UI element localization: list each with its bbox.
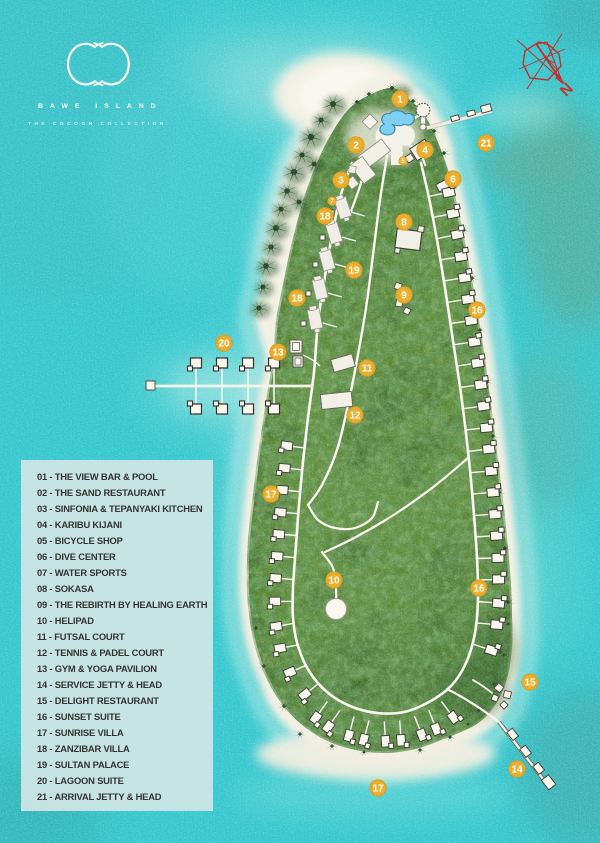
svg-text:02 - THE SAND RESTAURANT: 02 - THE SAND RESTAURANT: [37, 487, 166, 498]
svg-text:20 - LAGOON SUITE: 20 - LAGOON SUITE: [37, 775, 124, 786]
svg-text:19 - SULTAN PALACE: 19 - SULTAN PALACE: [37, 759, 129, 770]
svg-text:10 - HELIPAD: 10 - HELIPAD: [37, 615, 94, 626]
svg-text:06 - DIVE CENTER: 06 - DIVE CENTER: [37, 551, 116, 562]
svg-text:01 - THE VIEW BAR & POOL: 01 - THE VIEW BAR & POOL: [37, 471, 158, 482]
svg-text:14 - SERVICE JETTY & HEAD: 14 - SERVICE JETTY & HEAD: [37, 679, 162, 690]
svg-text:11 - FUTSAL COURT: 11 - FUTSAL COURT: [37, 631, 125, 642]
svg-text:21 - ARRIVAL JETTY & HEAD: 21 - ARRIVAL JETTY & HEAD: [37, 791, 162, 802]
svg-text:03 - SINFONIA & TEPANYAKI KITC: 03 - SINFONIA & TEPANYAKI KITCHEN: [37, 503, 203, 514]
svg-text:09 - THE REBIRTH BY HEALING EA: 09 - THE REBIRTH BY HEALING EARTH: [37, 599, 208, 610]
svg-text:13 - GYM & YOGA PAVILION: 13 - GYM & YOGA PAVILION: [37, 663, 157, 674]
svg-text:08 - SOKASA: 08 - SOKASA: [37, 583, 94, 594]
svg-text:17 - SUNRISE VILLA: 17 - SUNRISE VILLA: [37, 727, 124, 738]
svg-text:16 - SUNSET SUITE: 16 - SUNSET SUITE: [37, 711, 121, 722]
svg-text:BAWE ISLAND: BAWE ISLAND: [38, 103, 163, 110]
svg-text:THE COCOON COLLECTION: THE COCOON COLLECTION: [28, 121, 167, 127]
svg-text:12 - TENNIS & PADEL COURT: 12 - TENNIS & PADEL COURT: [37, 647, 164, 658]
svg-text:07 - WATER SPORTS: 07 - WATER SPORTS: [37, 567, 127, 578]
svg-text:04 - KARIBU KIJANI: 04 - KARIBU KIJANI: [37, 519, 122, 530]
svg-text:05 - BICYCLE SHOP: 05 - BICYCLE SHOP: [37, 535, 123, 546]
svg-text:15 - DELIGHT RESTAURANT: 15 - DELIGHT RESTAURANT: [37, 695, 159, 706]
svg-text:18 - ZANZIBAR VILLA: 18 - ZANZIBAR VILLA: [37, 743, 130, 754]
